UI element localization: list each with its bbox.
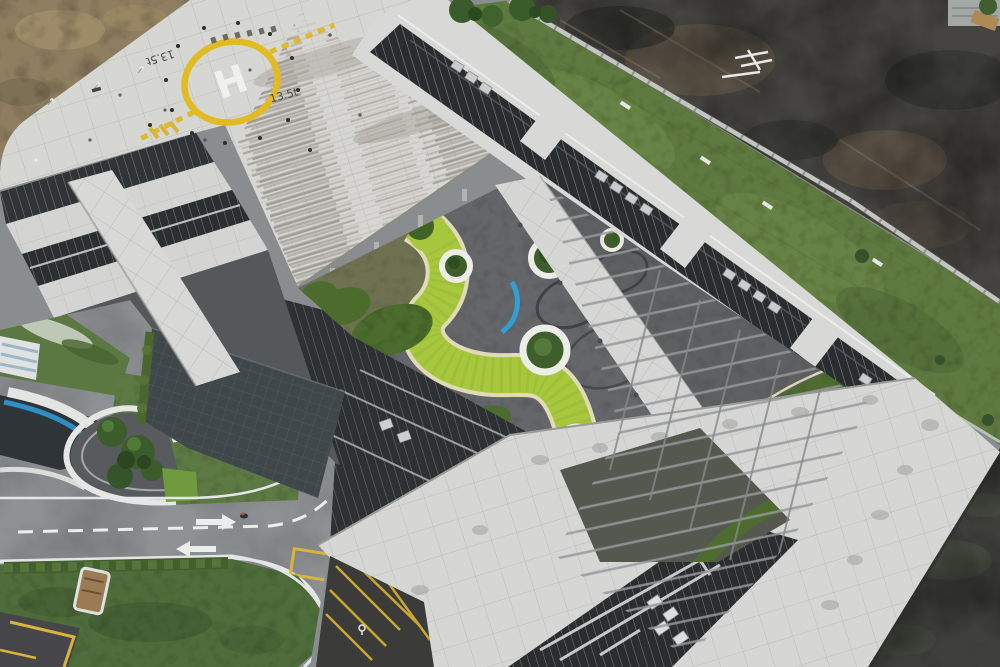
aerial-photo-canvas: H 13.5t 13.5t — [0, 0, 1000, 667]
aerial-photo: H 13.5t 13.5t — [0, 0, 1000, 667]
tree — [855, 249, 869, 263]
